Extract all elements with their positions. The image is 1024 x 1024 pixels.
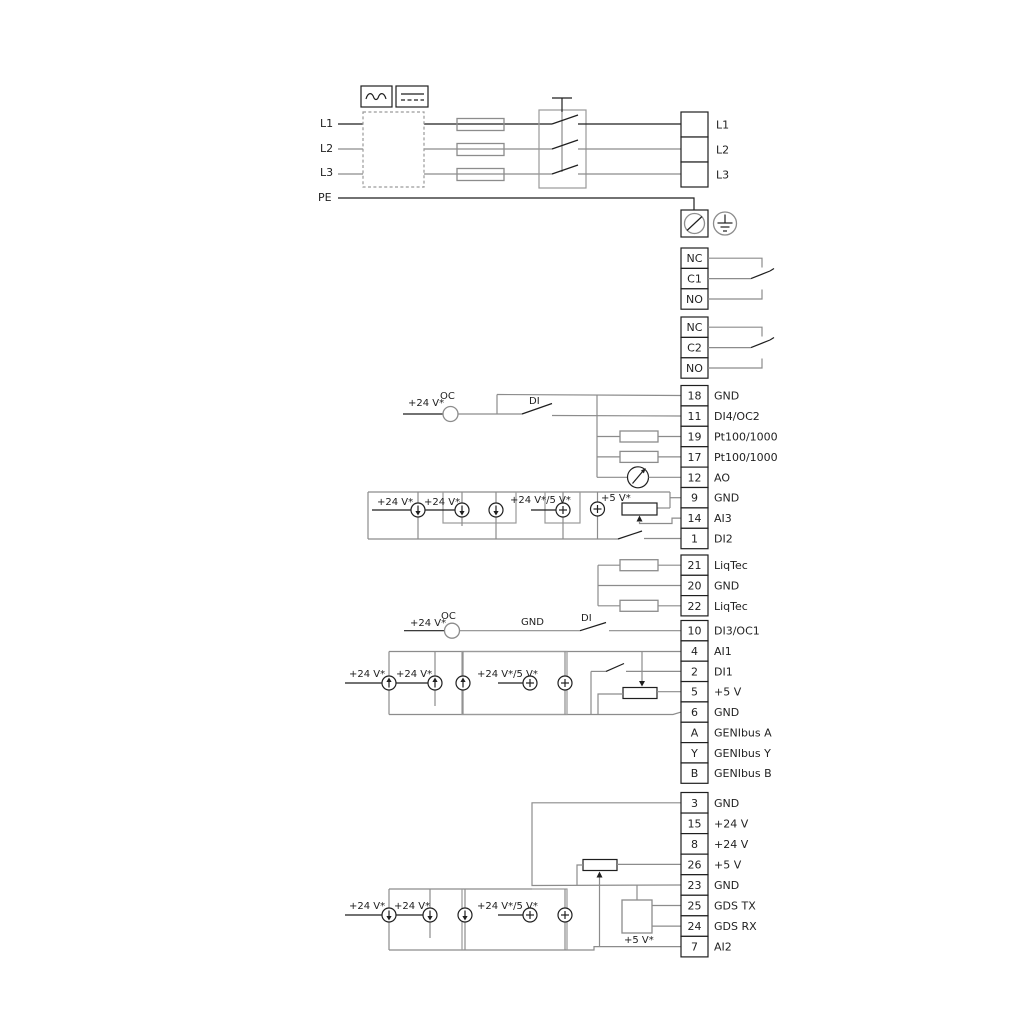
- terminal-number: 18: [688, 390, 702, 403]
- terminal-number: 2: [691, 665, 698, 678]
- terminal-number: 6: [691, 706, 698, 719]
- terminal-number: 23: [688, 879, 702, 892]
- ai3-supply2-label: +24 V*: [424, 497, 460, 508]
- pt100-resistor-icon: [620, 451, 658, 462]
- relay-2-block: NC C2 NO: [681, 317, 774, 378]
- ai3-supply1-label: +24 V*: [377, 497, 413, 508]
- terminal-out-l3: [681, 162, 708, 187]
- relay1-nc-label: NC: [687, 252, 703, 265]
- relay1-contact-icon: [751, 271, 770, 279]
- di1-switch-blade: [606, 664, 624, 672]
- terminal-number: 1: [691, 533, 698, 546]
- wiring-diagram-page: L1 L2 L3 PE: [0, 0, 1024, 1024]
- mains-output-terminal-block: L1 L2 L3: [681, 112, 729, 187]
- current-source-icon: [428, 676, 442, 690]
- terminal-label: DI1: [714, 665, 733, 678]
- out-l2-label: L2: [716, 144, 729, 157]
- voltage-source-icon: [523, 676, 537, 690]
- dc-symbol-box: [396, 86, 428, 107]
- terminal-number: 10: [688, 625, 702, 638]
- terminal-label: +5 V: [714, 858, 742, 871]
- io1-wiring: DI +24 V* OC: [403, 391, 681, 488]
- terminal-number: 3: [691, 797, 698, 810]
- terminal-number: 5: [691, 686, 698, 699]
- relay2-c2-label: C2: [687, 342, 702, 355]
- gds-sensor-box: [622, 900, 652, 933]
- ai3-source-row: +24 V* +24 V* +24 V*/5 V* +5 V*: [368, 492, 681, 539]
- terminal-out-l1: [681, 112, 708, 137]
- terminal-number: B: [691, 767, 699, 780]
- terminal-label: +24 V: [714, 817, 749, 830]
- relay1-no-label: NO: [686, 293, 703, 306]
- terminal-number: 21: [688, 559, 702, 572]
- terminal-label: GND: [714, 797, 739, 810]
- mains-input-section: L1 L2 L3 PE: [318, 117, 694, 210]
- terminal-label: DI4/OC2: [714, 410, 760, 423]
- voltage-source-icon: [556, 503, 570, 517]
- mains-l2-label: L2: [320, 142, 333, 155]
- pt100-resistor-icon: [620, 431, 658, 442]
- current-source-icon: [423, 908, 437, 922]
- terminal-label: AI3: [714, 512, 732, 525]
- terminal-label: GND: [714, 580, 739, 593]
- current-source-icon: [489, 503, 503, 517]
- liqtec-resistor-icon: [620, 600, 658, 611]
- terminal-label: +5 V: [714, 686, 742, 699]
- terminal-label: GND: [714, 879, 739, 892]
- terminal-number: 11: [688, 410, 702, 423]
- di2-switch-blade: [618, 531, 642, 539]
- open-collector-icon: [443, 407, 458, 422]
- potentiometer-icon: [623, 688, 657, 699]
- switch-blade-l1: [552, 115, 578, 124]
- current-source-icon: [382, 676, 396, 690]
- terminal-number: 9: [691, 492, 698, 505]
- di4-supply-label: +24 V*: [408, 398, 444, 409]
- terminal-number: 8: [691, 838, 698, 851]
- ai2-source-row: +24 V* +24 V* +24 V*/5 V* +5 V*: [345, 803, 681, 950]
- terminal-label: GENIbus Y: [714, 747, 771, 760]
- terminal-number: 24: [688, 920, 702, 933]
- terminal-out-l2: [681, 137, 708, 162]
- relay-1-block: NC C1 NO: [681, 248, 774, 309]
- liqtec-wiring: [598, 560, 681, 612]
- io-terminal-block-1: 18GND 11DI4/OC2 19Pt100/1000 17Pt100/100…: [681, 386, 778, 549]
- current-source-icon: [456, 676, 470, 690]
- terminal-number: 22: [688, 600, 702, 613]
- terminal-label: DI2: [714, 533, 733, 546]
- mains-l3-label: L3: [320, 166, 333, 179]
- terminal-label: GND: [714, 706, 739, 719]
- ai1-source-row: +24 V* +24 V* +24 V*/5 V*: [345, 652, 681, 715]
- terminal-label: AO: [714, 471, 730, 484]
- terminal-number: 19: [688, 431, 702, 444]
- terminal-label: GND: [714, 390, 739, 403]
- terminal-label: GENIbus A: [714, 726, 772, 739]
- liqtec-resistor-icon: [620, 560, 658, 571]
- terminal-number: Y: [690, 747, 698, 760]
- pe-terminal: [681, 210, 737, 237]
- current-source-icon: [455, 503, 469, 517]
- terminal-label: GND: [714, 492, 739, 505]
- terminal-number: 7: [691, 941, 698, 954]
- relay2-no-label: NO: [686, 362, 703, 375]
- out-l3-label: L3: [716, 169, 729, 182]
- ac-symbol-box: [361, 86, 392, 107]
- current-source-icon: [458, 908, 472, 922]
- current-source-icon: [411, 503, 425, 517]
- potentiometer-icon: [622, 503, 657, 515]
- filter-dashed-box: [363, 112, 424, 187]
- disconnect-switch: [539, 98, 681, 188]
- terminal-number: 12: [688, 471, 702, 484]
- voltage-source-icon: [591, 502, 605, 516]
- io-terminal-block-3: 3GND 15+24 V 8+24 V 26+5 V 23GND 25GDS T…: [681, 793, 757, 957]
- ai3-5v-label: +5 V*: [601, 493, 631, 504]
- di3-oc-label: OC: [441, 611, 456, 622]
- liqtec-terminal-block: 21LiqTec 20GND 22LiqTec: [681, 555, 748, 616]
- terminal-label: +24 V: [714, 838, 749, 851]
- terminal-label: Pt100/1000: [714, 431, 778, 444]
- terminal-label: GDS RX: [714, 920, 757, 933]
- terminal-label: AI1: [714, 645, 732, 658]
- terminal-number: 15: [688, 817, 702, 830]
- voltage-source-icon: [523, 908, 537, 922]
- pe-wire: [338, 198, 694, 210]
- terminal-label: Pt100/1000: [714, 451, 778, 464]
- di3-gnd-label: GND: [521, 617, 544, 628]
- ai1-supply1-label: +24 V*: [349, 669, 385, 680]
- potentiometer-icon: [583, 860, 617, 871]
- current-source-icon: [382, 908, 396, 922]
- mains-l1-label: L1: [320, 117, 333, 130]
- terminal-label: LiqTec: [714, 559, 748, 572]
- terminal-number: 26: [688, 858, 702, 871]
- terminal-number: 17: [688, 451, 702, 464]
- terminal-number: 14: [688, 512, 702, 525]
- ai2-supply1-label: +24 V*: [349, 901, 385, 912]
- terminal-label: GENIbus B: [714, 767, 772, 780]
- terminal-number: 4: [691, 645, 698, 658]
- switch-blade-l2: [552, 140, 578, 149]
- terminal-number: A: [691, 726, 699, 739]
- io-terminal-block-2: 10DI3/OC1 4AI1 2DI1 5+5 V 6GND AGENIbus …: [681, 621, 772, 784]
- di4-switch-label: DI: [529, 396, 540, 407]
- terminal-number: 25: [688, 900, 702, 913]
- terminal-label: LiqTec: [714, 600, 748, 613]
- open-collector-icon: [445, 623, 460, 638]
- rfi-filter-box: [361, 86, 428, 187]
- voltage-source-icon: [558, 908, 572, 922]
- terminal-label: GDS TX: [714, 900, 756, 913]
- terminal-number: 20: [688, 580, 702, 593]
- relay2-nc-label: NC: [687, 321, 703, 334]
- voltage-source-icon: [558, 676, 572, 690]
- mains-pe-label: PE: [318, 191, 332, 204]
- switch-blade-l3: [552, 165, 578, 174]
- di3-oc1-wiring: +24 V* OC GND DI: [404, 611, 681, 638]
- gds-5v-label: +5 V*: [624, 935, 654, 946]
- terminal-label: DI3/OC1: [714, 625, 760, 638]
- di3-switch-label: DI: [581, 613, 592, 624]
- wiring-diagram: L1 L2 L3 PE: [0, 0, 1024, 1024]
- ai1-supply2-label: +24 V*: [396, 669, 432, 680]
- out-l1-label: L1: [716, 119, 729, 132]
- relay1-c1-label: C1: [687, 273, 702, 286]
- di4-oc-label: OC: [440, 391, 455, 402]
- relay2-contact-icon: [751, 340, 770, 348]
- terminal-label: AI2: [714, 941, 732, 954]
